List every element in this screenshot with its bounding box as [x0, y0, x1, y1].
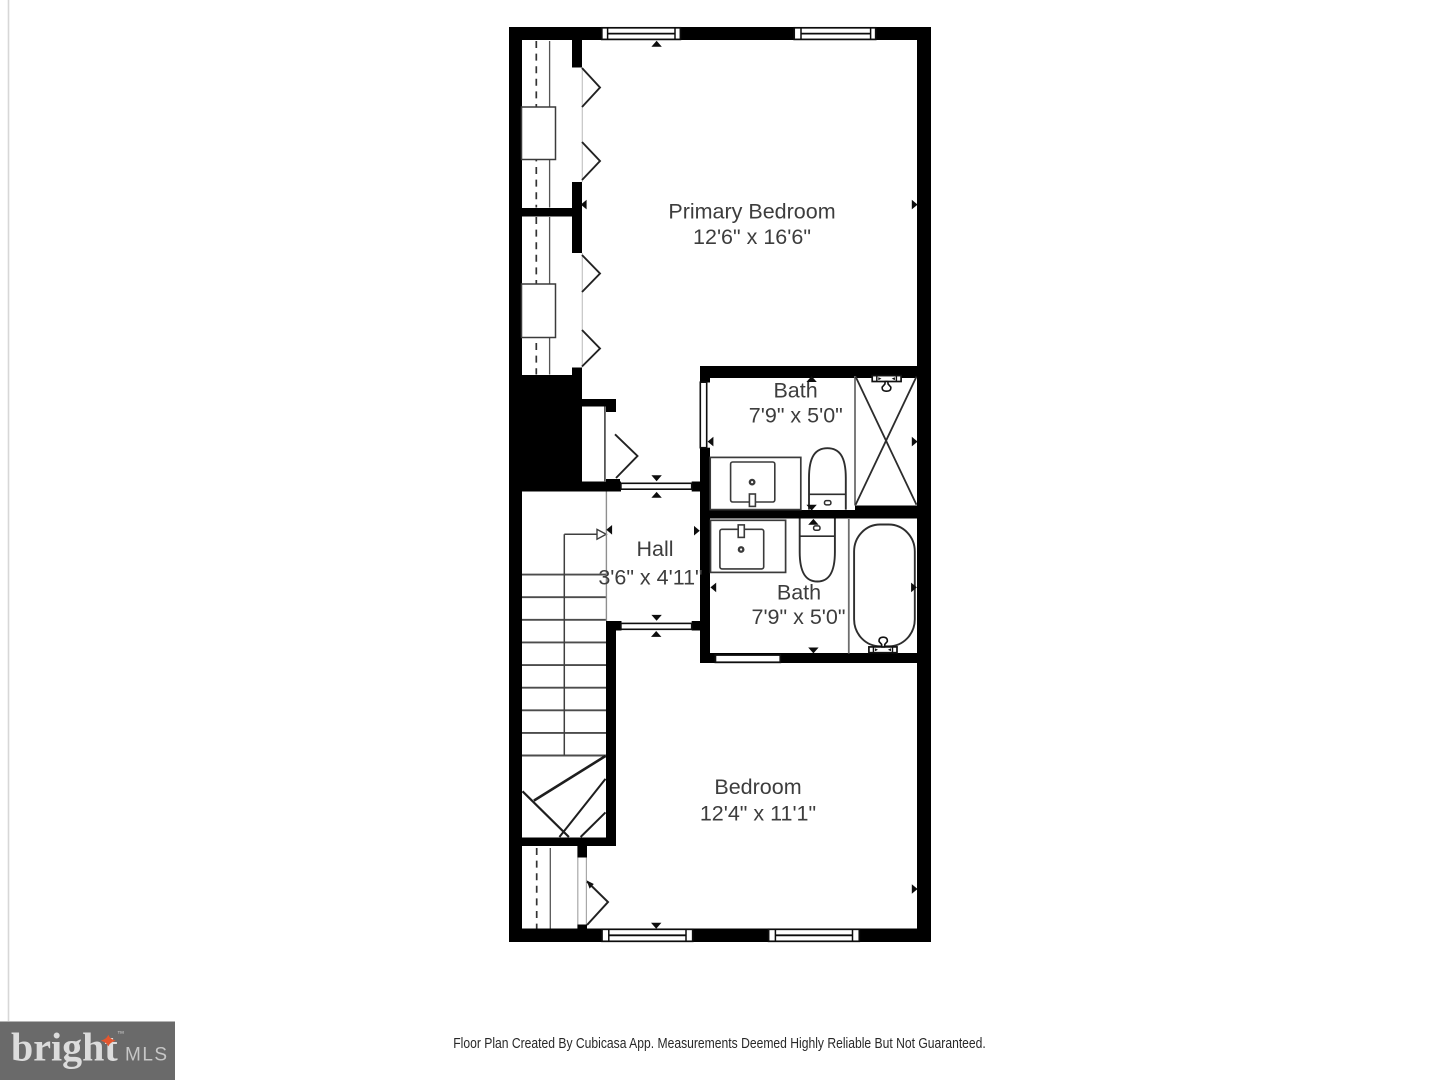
- svg-text:Floor Plan Created By Cubicasa: Floor Plan Created By Cubicasa App. Meas…: [453, 1035, 986, 1051]
- svg-text:bright: bright: [11, 1025, 118, 1070]
- svg-text:12'6" x 16'6": 12'6" x 16'6": [693, 225, 811, 249]
- svg-text:MLS: MLS: [125, 1045, 169, 1066]
- svg-text:7'9" x 5'0": 7'9" x 5'0": [749, 404, 843, 428]
- svg-text:Bath: Bath: [777, 580, 821, 604]
- svg-text:12'4" x 11'1": 12'4" x 11'1": [700, 802, 816, 826]
- svg-text:Bath: Bath: [773, 378, 817, 402]
- svg-text:7'9" x 5'0": 7'9" x 5'0": [752, 605, 846, 629]
- svg-text:Primary Bedroom: Primary Bedroom: [668, 200, 835, 224]
- svg-text:™: ™: [117, 1029, 125, 1038]
- svg-text:Hall: Hall: [636, 537, 673, 561]
- svg-text:3'6" x 4'11": 3'6" x 4'11": [598, 565, 702, 589]
- svg-text:Bedroom: Bedroom: [714, 775, 801, 799]
